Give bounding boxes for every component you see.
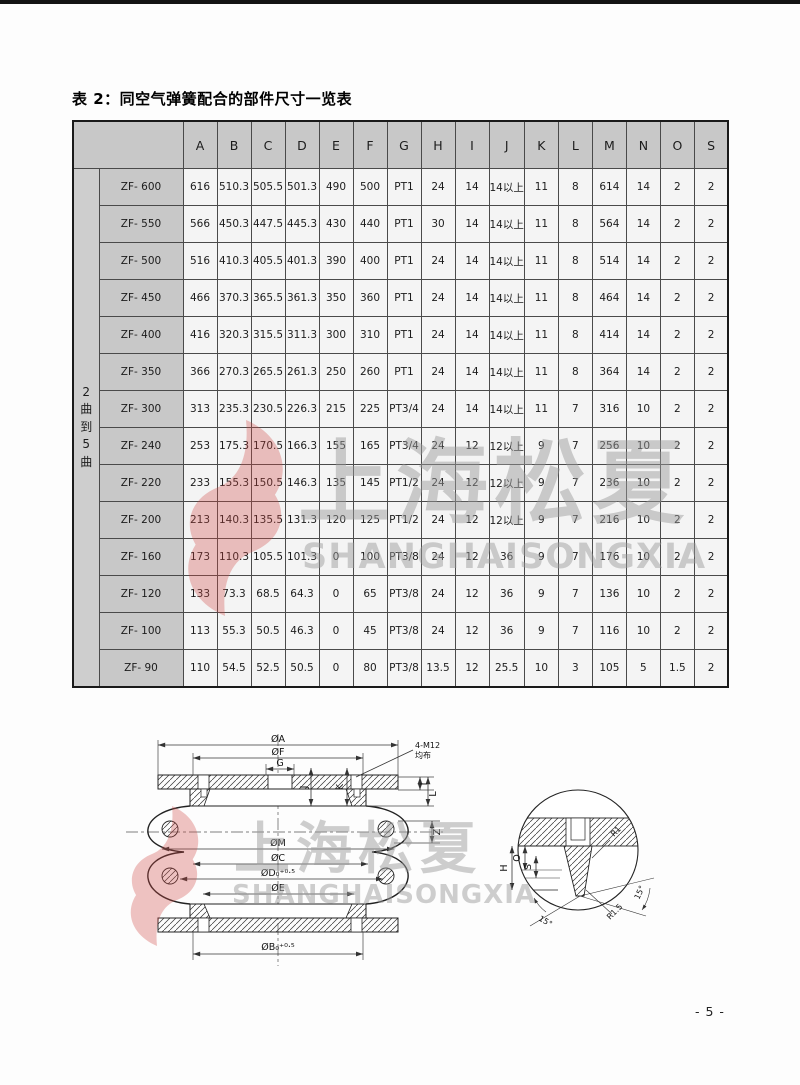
value-cell: 5 <box>626 650 660 688</box>
value-cell: PT3/8 <box>387 613 421 650</box>
bead-ring <box>162 821 178 837</box>
value-cell: 150.5 <box>251 465 285 502</box>
value-cell: 516 <box>183 243 217 280</box>
value-cell: 7 <box>558 539 592 576</box>
col-header-G: G <box>387 121 421 169</box>
value-cell: 7 <box>558 428 592 465</box>
dim-label-oa: ØA <box>271 734 285 745</box>
value-cell: 50.5 <box>285 650 319 688</box>
value-cell: 2 <box>694 428 728 465</box>
value-cell: 2 <box>660 169 694 206</box>
value-cell: 366 <box>183 354 217 391</box>
value-cell: 370.3 <box>217 280 251 317</box>
value-cell: 2 <box>694 354 728 391</box>
value-cell: 8 <box>558 243 592 280</box>
dim-label-j: J <box>299 786 310 790</box>
value-cell: 2 <box>694 391 728 428</box>
value-cell: 64.3 <box>285 576 319 613</box>
value-cell: PT3/8 <box>387 576 421 613</box>
value-cell: 14 <box>455 206 489 243</box>
value-cell: 45 <box>353 613 387 650</box>
value-cell: 215 <box>319 391 353 428</box>
value-cell: 450.3 <box>217 206 251 243</box>
value-cell: 175.3 <box>217 428 251 465</box>
value-cell: 14 <box>455 243 489 280</box>
value-cell: 14 <box>626 206 660 243</box>
table-row: ZF- 550566450.3447.5445.3430440PT1301414… <box>73 206 728 243</box>
top-inner-plate <box>190 789 366 806</box>
value-cell: 2 <box>694 502 728 539</box>
catalog-page: 表 2：同空气弹簧配合的部件尺寸一览表 ABCDEFGHIJKLMNOS2曲到5… <box>0 0 800 1085</box>
value-cell: 24 <box>421 613 455 650</box>
value-cell: 253 <box>183 428 217 465</box>
value-cell: 65 <box>353 576 387 613</box>
value-cell: 14 <box>455 317 489 354</box>
value-cell: 9 <box>524 539 558 576</box>
table-corner-cell <box>73 121 183 169</box>
value-cell: 236 <box>592 465 626 502</box>
dim-label-z: Z <box>432 828 443 835</box>
bead-ring <box>378 821 394 837</box>
col-header-F: F <box>353 121 387 169</box>
value-cell: 3 <box>558 650 592 688</box>
value-cell: 0 <box>319 539 353 576</box>
value-cell: 405.5 <box>251 243 285 280</box>
value-cell: 145 <box>353 465 387 502</box>
value-cell: 2 <box>660 206 694 243</box>
dim-label-m12: 4-M12 <box>415 741 440 750</box>
model-cell: ZF- 240 <box>99 428 183 465</box>
value-cell: 10 <box>626 428 660 465</box>
dim-label-s: S <box>523 864 534 870</box>
value-cell: 10 <box>626 576 660 613</box>
page-top-border <box>0 0 800 4</box>
value-cell: 10 <box>524 650 558 688</box>
value-cell: 313 <box>183 391 217 428</box>
value-cell: 80 <box>353 650 387 688</box>
value-cell: 9 <box>524 428 558 465</box>
value-cell: 361.3 <box>285 280 319 317</box>
value-cell: 416 <box>183 317 217 354</box>
dim-label-of: ØF <box>272 747 285 758</box>
model-cell: ZF- 350 <box>99 354 183 391</box>
value-cell: 315.5 <box>251 317 285 354</box>
value-cell: 2 <box>660 576 694 613</box>
value-cell: 9 <box>524 576 558 613</box>
value-cell: 2 <box>694 317 728 354</box>
value-cell: 260 <box>353 354 387 391</box>
value-cell: 1.5 <box>660 650 694 688</box>
col-header-B: B <box>217 121 251 169</box>
value-cell: 311.3 <box>285 317 319 354</box>
value-cell: 2 <box>660 280 694 317</box>
value-cell: 430 <box>319 206 353 243</box>
value-cell: 14 <box>626 169 660 206</box>
value-cell: 501.3 <box>285 169 319 206</box>
value-cell: 235.3 <box>217 391 251 428</box>
value-cell: PT1 <box>387 206 421 243</box>
value-cell: 10 <box>626 465 660 502</box>
value-cell: 24 <box>421 317 455 354</box>
value-cell: 360 <box>353 280 387 317</box>
value-cell: PT1/2 <box>387 502 421 539</box>
value-cell: 105.5 <box>251 539 285 576</box>
value-cell: PT1 <box>387 354 421 391</box>
value-cell: 14以上 <box>489 169 524 206</box>
value-cell: 564 <box>592 206 626 243</box>
value-cell: 2 <box>694 169 728 206</box>
bolt-hole <box>351 918 362 932</box>
table-row: ZF- 400416320.3315.5311.3300310PT1241414… <box>73 317 728 354</box>
value-cell: 24 <box>421 391 455 428</box>
col-header-L: L <box>558 121 592 169</box>
value-cell: 505.5 <box>251 169 285 206</box>
value-cell: 30 <box>421 206 455 243</box>
value-cell: 616 <box>183 169 217 206</box>
value-cell: 116 <box>592 613 626 650</box>
table-row: ZF- 300313235.3230.5226.3215225PT3/42414… <box>73 391 728 428</box>
value-cell: 173 <box>183 539 217 576</box>
value-cell: 14 <box>455 391 489 428</box>
model-cell: ZF- 200 <box>99 502 183 539</box>
value-cell: 230.5 <box>251 391 285 428</box>
dim-label-ob: ØB₀⁺⁰·⁵ <box>261 942 295 953</box>
col-header-K: K <box>524 121 558 169</box>
value-cell: 24 <box>421 428 455 465</box>
bolt-hole <box>198 775 209 789</box>
value-cell: 100 <box>353 539 387 576</box>
value-cell: 510.3 <box>217 169 251 206</box>
value-cell: 10 <box>626 539 660 576</box>
value-cell: 265.5 <box>251 354 285 391</box>
col-header-O: O <box>660 121 694 169</box>
table-row: ZF- 350366270.3265.5261.3250260PT1241414… <box>73 354 728 391</box>
value-cell: 46.3 <box>285 613 319 650</box>
value-cell: 24 <box>421 354 455 391</box>
dim-label-oe: ØE <box>271 883 284 894</box>
value-cell: 24 <box>421 576 455 613</box>
value-cell: 14以上 <box>489 243 524 280</box>
table-row: ZF- 10011355.350.546.3045PT3/82412369711… <box>73 613 728 650</box>
value-cell: 250 <box>319 354 353 391</box>
model-cell: ZF- 600 <box>99 169 183 206</box>
value-cell: 14 <box>626 280 660 317</box>
value-cell: 7 <box>558 613 592 650</box>
value-cell: 140.3 <box>217 502 251 539</box>
value-cell: 320.3 <box>217 317 251 354</box>
col-header-M: M <box>592 121 626 169</box>
value-cell: 9 <box>524 613 558 650</box>
value-cell: 12 <box>455 465 489 502</box>
value-cell: 68.5 <box>251 576 285 613</box>
value-cell: 310 <box>353 317 387 354</box>
value-cell: 166.3 <box>285 428 319 465</box>
value-cell: 14以上 <box>489 354 524 391</box>
table-row: ZF- 450466370.3365.5361.3350360PT1241414… <box>73 280 728 317</box>
value-cell: PT3/4 <box>387 428 421 465</box>
value-cell: 0 <box>319 650 353 688</box>
col-header-H: H <box>421 121 455 169</box>
value-cell: 7 <box>558 502 592 539</box>
value-cell: PT1 <box>387 169 421 206</box>
value-cell: 50.5 <box>251 613 285 650</box>
value-cell: 464 <box>592 280 626 317</box>
dim-label-angle1: 15° <box>537 914 554 929</box>
value-cell: 13.5 <box>421 650 455 688</box>
value-cell: 11 <box>524 206 558 243</box>
value-cell: 54.5 <box>217 650 251 688</box>
spec-table: ABCDEFGHIJKLMNOS2曲到5曲ZF- 600616510.3505.… <box>72 120 729 688</box>
dim-label-g: G <box>276 758 283 769</box>
value-cell: PT1 <box>387 317 421 354</box>
value-cell: 2 <box>694 650 728 688</box>
dim-label-i: I <box>419 783 430 786</box>
model-cell: ZF- 120 <box>99 576 183 613</box>
value-cell: 466 <box>183 280 217 317</box>
col-header-J: J <box>489 121 524 169</box>
value-cell: 11 <box>524 391 558 428</box>
value-cell: 14以上 <box>489 317 524 354</box>
value-cell: 14 <box>626 354 660 391</box>
value-cell: 14以上 <box>489 206 524 243</box>
dim-label-o: O <box>512 854 523 861</box>
value-cell: 14以上 <box>489 280 524 317</box>
value-cell: 12以上 <box>489 428 524 465</box>
value-cell: 514 <box>592 243 626 280</box>
value-cell: 270.3 <box>217 354 251 391</box>
bolt-stem <box>354 789 360 797</box>
model-cell: ZF- 400 <box>99 317 183 354</box>
bead-ring <box>378 868 394 884</box>
value-cell: 2 <box>660 539 694 576</box>
value-cell: 135.5 <box>251 502 285 539</box>
value-cell: 25.5 <box>489 650 524 688</box>
value-cell: 170.5 <box>251 428 285 465</box>
dim-label-r15: R1.5 <box>605 902 624 921</box>
col-header-E: E <box>319 121 353 169</box>
model-cell: ZF- 550 <box>99 206 183 243</box>
col-header-C: C <box>251 121 285 169</box>
value-cell: 2 <box>694 206 728 243</box>
value-cell: 8 <box>558 317 592 354</box>
model-cell: ZF- 100 <box>99 613 183 650</box>
value-cell: 390 <box>319 243 353 280</box>
row-group-label: 2曲到5曲 <box>73 169 99 688</box>
value-cell: 133 <box>183 576 217 613</box>
value-cell: 12 <box>455 428 489 465</box>
dim-label-m12b: 均布 <box>415 750 431 760</box>
value-cell: 136 <box>592 576 626 613</box>
value-cell: 12 <box>455 613 489 650</box>
page-number: - 5 - <box>695 1004 725 1019</box>
value-cell: 414 <box>592 317 626 354</box>
value-cell: 2 <box>694 613 728 650</box>
value-cell: 12以上 <box>489 465 524 502</box>
value-cell: 2 <box>694 280 728 317</box>
col-header-N: N <box>626 121 660 169</box>
value-cell: 131.3 <box>285 502 319 539</box>
value-cell: 447.5 <box>251 206 285 243</box>
value-cell: 226.3 <box>285 391 319 428</box>
value-cell: PT1 <box>387 243 421 280</box>
value-cell: 566 <box>183 206 217 243</box>
value-cell: 14以上 <box>489 391 524 428</box>
value-cell: 11 <box>524 354 558 391</box>
value-cell: 440 <box>353 206 387 243</box>
value-cell: 10 <box>626 391 660 428</box>
col-header-D: D <box>285 121 319 169</box>
col-header-A: A <box>183 121 217 169</box>
value-cell: 176 <box>592 539 626 576</box>
dim-label-od: ØD₀⁺⁰·⁵ <box>261 868 295 879</box>
value-cell: 233 <box>183 465 217 502</box>
value-cell: 14 <box>626 243 660 280</box>
value-cell: PT3/8 <box>387 539 421 576</box>
value-cell: 10 <box>626 613 660 650</box>
value-cell: 300 <box>319 317 353 354</box>
value-cell: 2 <box>660 354 694 391</box>
value-cell: 36 <box>489 539 524 576</box>
value-cell: 11 <box>524 280 558 317</box>
value-cell: PT1 <box>387 280 421 317</box>
dim-label-om: ØM <box>270 838 286 849</box>
value-cell: 24 <box>421 465 455 502</box>
value-cell: 155 <box>319 428 353 465</box>
model-cell: ZF- 220 <box>99 465 183 502</box>
value-cell: 2 <box>660 502 694 539</box>
value-cell: 73.3 <box>217 576 251 613</box>
value-cell: 350 <box>319 280 353 317</box>
value-cell: 24 <box>421 502 455 539</box>
value-cell: 14 <box>455 169 489 206</box>
value-cell: 490 <box>319 169 353 206</box>
value-cell: 14 <box>626 317 660 354</box>
value-cell: 113 <box>183 613 217 650</box>
value-cell: 165 <box>353 428 387 465</box>
table-row: ZF- 500516410.3405.5401.3390400PT1241414… <box>73 243 728 280</box>
value-cell: 14 <box>455 354 489 391</box>
value-cell: 110 <box>183 650 217 688</box>
value-cell: PT1/2 <box>387 465 421 502</box>
value-cell: 261.3 <box>285 354 319 391</box>
value-cell: 36 <box>489 613 524 650</box>
value-cell: 12 <box>455 502 489 539</box>
value-cell: 216 <box>592 502 626 539</box>
value-cell: PT3/4 <box>387 391 421 428</box>
value-cell: 11 <box>524 169 558 206</box>
value-cell: 2 <box>660 613 694 650</box>
table-row: ZF- 200213140.3135.5131.3120125PT1/22412… <box>73 502 728 539</box>
value-cell: 2 <box>694 576 728 613</box>
value-cell: 2 <box>694 539 728 576</box>
value-cell: 12 <box>455 576 489 613</box>
value-cell: 8 <box>558 206 592 243</box>
dim-label-l: L <box>428 791 439 797</box>
table-row: ZF- 220233155.3150.5146.3135145PT1/22412… <box>73 465 728 502</box>
value-cell: 12以上 <box>489 502 524 539</box>
table-row: 2曲到5曲ZF- 600616510.3505.5501.3490500PT12… <box>73 169 728 206</box>
value-cell: 7 <box>558 576 592 613</box>
value-cell: 365.5 <box>251 280 285 317</box>
value-cell: 52.5 <box>251 650 285 688</box>
col-header-S: S <box>694 121 728 169</box>
value-cell: 316 <box>592 391 626 428</box>
model-cell: ZF- 160 <box>99 539 183 576</box>
value-cell: 614 <box>592 169 626 206</box>
table-row: ZF- 9011054.552.550.5080PT3/813.51225.51… <box>73 650 728 688</box>
value-cell: 445.3 <box>285 206 319 243</box>
value-cell: 9 <box>524 502 558 539</box>
value-cell: 155.3 <box>217 465 251 502</box>
bolt-hole <box>198 918 209 932</box>
value-cell: 101.3 <box>285 539 319 576</box>
table-row: ZF- 12013373.368.564.3065PT3/82412369713… <box>73 576 728 613</box>
value-cell: 55.3 <box>217 613 251 650</box>
value-cell: 2 <box>694 243 728 280</box>
value-cell: 500 <box>353 169 387 206</box>
value-cell: 36 <box>489 576 524 613</box>
value-cell: 2 <box>694 465 728 502</box>
model-cell: ZF- 300 <box>99 391 183 428</box>
table-row: ZF- 160173110.3105.5101.30100PT3/8241236… <box>73 539 728 576</box>
value-cell: 7 <box>558 391 592 428</box>
value-cell: 12 <box>455 650 489 688</box>
value-cell: 12 <box>455 539 489 576</box>
value-cell: 7 <box>558 465 592 502</box>
value-cell: 400 <box>353 243 387 280</box>
value-cell: 0 <box>319 613 353 650</box>
value-cell: 24 <box>421 539 455 576</box>
value-cell: 120 <box>319 502 353 539</box>
value-cell: 225 <box>353 391 387 428</box>
technical-drawing: ØA ØF G 4-M12 均布 J K I L Z ØM ØC ØD₀⁺⁰·⁵… <box>98 720 698 975</box>
value-cell: 8 <box>558 280 592 317</box>
value-cell: 125 <box>353 502 387 539</box>
page-title: 表 2：同空气弹簧配合的部件尺寸一览表 <box>72 88 352 109</box>
value-cell: 2 <box>660 317 694 354</box>
dim-label-h: H <box>499 864 510 871</box>
value-cell: PT3/8 <box>387 650 421 688</box>
table-row: ZF- 240253175.3170.5166.3155165PT3/42412… <box>73 428 728 465</box>
value-cell: 105 <box>592 650 626 688</box>
value-cell: 2 <box>660 391 694 428</box>
dim-label-oc: ØC <box>271 853 285 864</box>
value-cell: 401.3 <box>285 243 319 280</box>
value-cell: 135 <box>319 465 353 502</box>
value-cell: 24 <box>421 243 455 280</box>
air-spring-cross-section: ØA ØF G 4-M12 均布 J K I L Z ØM ØC ØD₀⁺⁰·⁵… <box>98 720 698 975</box>
value-cell: 110.3 <box>217 539 251 576</box>
value-cell: 256 <box>592 428 626 465</box>
center-hole <box>268 775 292 789</box>
value-cell: 410.3 <box>217 243 251 280</box>
value-cell: 146.3 <box>285 465 319 502</box>
value-cell: 24 <box>421 280 455 317</box>
bottom-inner-plate <box>190 904 366 918</box>
value-cell: 364 <box>592 354 626 391</box>
value-cell: 10 <box>626 502 660 539</box>
value-cell: 2 <box>660 465 694 502</box>
bolt-stem <box>201 789 207 797</box>
model-cell: ZF- 90 <box>99 650 183 688</box>
value-cell: 24 <box>421 169 455 206</box>
model-cell: ZF- 500 <box>99 243 183 280</box>
dim-label-k: K <box>335 783 346 790</box>
value-cell: 2 <box>660 243 694 280</box>
value-cell: 9 <box>524 465 558 502</box>
value-cell: 14 <box>455 280 489 317</box>
value-cell: 8 <box>558 169 592 206</box>
